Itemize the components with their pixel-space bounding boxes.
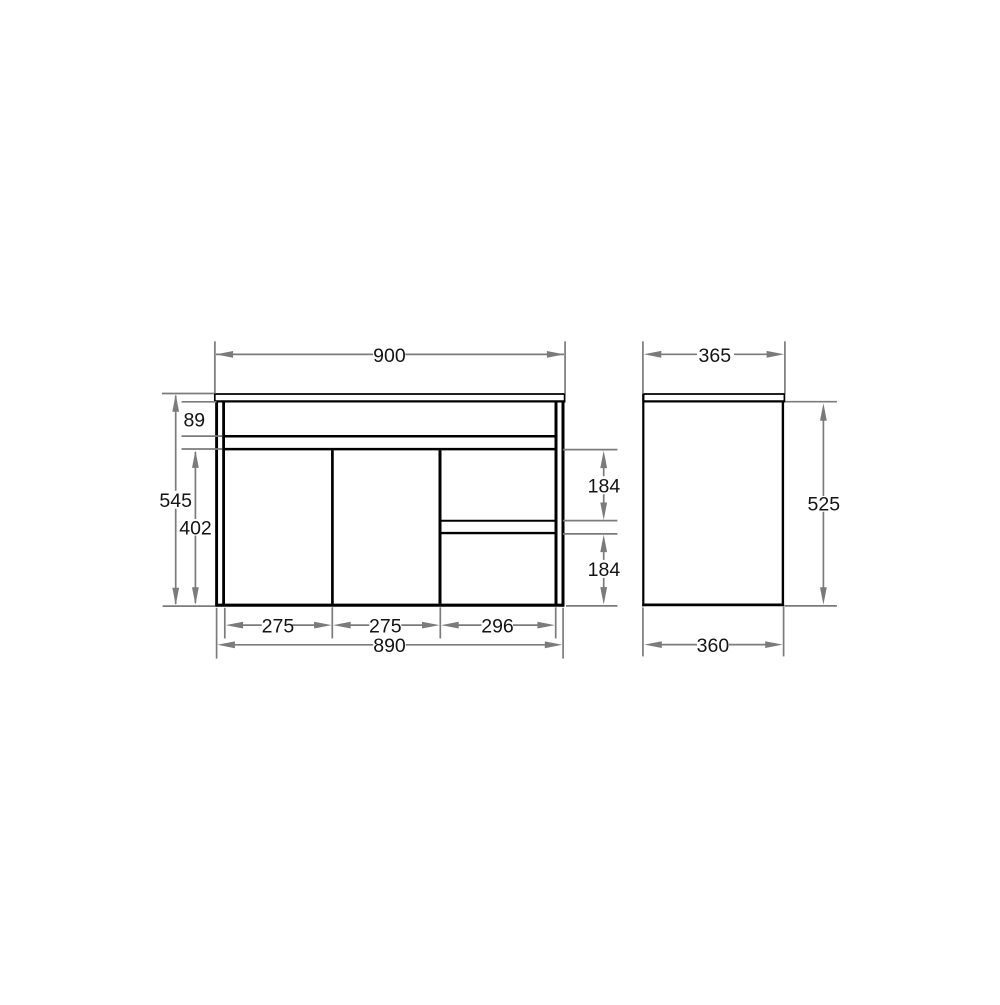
svg-text:525: 525 <box>808 494 841 516</box>
svg-text:296: 296 <box>481 615 514 637</box>
svg-text:402: 402 <box>179 517 212 539</box>
svg-text:184: 184 <box>588 475 621 497</box>
svg-text:365: 365 <box>699 345 732 367</box>
svg-text:275: 275 <box>369 615 402 637</box>
svg-text:360: 360 <box>697 635 730 657</box>
svg-text:890: 890 <box>373 635 406 657</box>
svg-text:545: 545 <box>159 490 192 512</box>
svg-text:275: 275 <box>262 615 295 637</box>
svg-text:184: 184 <box>588 559 621 581</box>
svg-text:89: 89 <box>183 409 205 431</box>
svg-text:900: 900 <box>373 345 406 367</box>
